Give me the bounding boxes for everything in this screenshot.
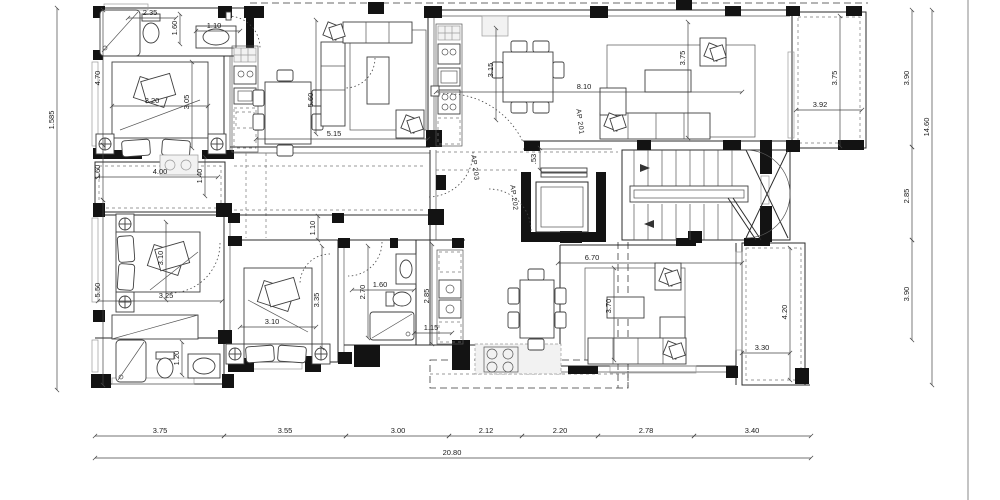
dim-label: 3.35 bbox=[312, 293, 321, 308]
dim-label-total: 1.585 bbox=[47, 111, 56, 130]
floor-plan-drawing: AP 201 AP 203 AP 202 2.35 1.60 1.10 3.20… bbox=[0, 0, 1000, 500]
dim-label: 2.70 bbox=[358, 285, 367, 300]
dim-label: 3.05 bbox=[182, 95, 191, 110]
dim-label: 3.25 bbox=[159, 291, 174, 300]
dining-table-symbol bbox=[503, 52, 553, 102]
bedroom-1 bbox=[96, 62, 226, 157]
dim-label: 3.55 bbox=[278, 426, 293, 435]
kitchen-2 bbox=[436, 16, 508, 146]
dim-label-total: 20.80 bbox=[443, 448, 462, 457]
dim-label: 1.15 bbox=[424, 323, 439, 332]
stair-direction-arrow bbox=[644, 220, 654, 228]
side-table-symbol bbox=[660, 317, 685, 340]
elevator bbox=[521, 168, 606, 242]
dim-label: 2.20 bbox=[553, 426, 568, 435]
dim-label: 3.75 bbox=[153, 426, 168, 435]
dim-label: 3.92 bbox=[813, 100, 828, 109]
door-arc bbox=[348, 242, 382, 276]
dining-table-1 bbox=[253, 70, 323, 156]
right-dimension-column: 3.90 2.85 3.90 14.60 bbox=[902, 10, 932, 385]
dim-label: 5.15 bbox=[327, 129, 342, 138]
dim-label: 1.10 bbox=[207, 21, 222, 30]
dim-label: 5.50 bbox=[93, 283, 102, 298]
dim-label: 8.10 bbox=[577, 82, 592, 91]
apartment-label-203: AP 203 bbox=[469, 155, 480, 182]
dim-label: 2.12 bbox=[479, 426, 494, 435]
floor-plan-sheet: AP 201 AP 203 AP 202 2.35 1.60 1.10 3.20… bbox=[0, 0, 1000, 500]
dim-label: 1.40 bbox=[195, 169, 204, 184]
dining-table-3 bbox=[508, 269, 566, 350]
bathroom-topleft bbox=[100, 10, 236, 56]
bottom-dimension-row: 3.75 3.55 3.00 2.12 2.20 2.78 3.40 20.80 bbox=[95, 426, 811, 458]
stove-symbol bbox=[438, 90, 460, 114]
dim-label: 5.60 bbox=[306, 93, 315, 108]
sofa-symbol bbox=[321, 42, 345, 126]
dim-label-total: 14.60 bbox=[922, 118, 931, 137]
dim-label: 1.60 bbox=[373, 280, 388, 289]
stair-direction-arrow bbox=[640, 164, 650, 172]
dim-label: 2.78 bbox=[639, 426, 654, 435]
dim-label: 4.20 bbox=[780, 305, 789, 320]
coffee-table-symbol bbox=[367, 57, 389, 104]
sink-symbol bbox=[396, 254, 416, 284]
dim-label: 3.75 bbox=[830, 71, 839, 86]
dim-label: 2.85 bbox=[422, 289, 431, 304]
dim-label: 3.90 bbox=[902, 287, 911, 302]
coffee-table-symbol bbox=[645, 70, 691, 92]
bedroom-3 bbox=[226, 268, 330, 364]
bathroom-middle bbox=[370, 254, 416, 340]
dim-label: 3.00 bbox=[391, 426, 406, 435]
dim-label: 6.70 bbox=[585, 253, 600, 262]
dim-label: 3.10 bbox=[156, 251, 165, 266]
dim-label: 3.30 bbox=[755, 343, 770, 352]
dim-label: 2.35 bbox=[143, 8, 158, 17]
dim-label: 3.75 bbox=[678, 51, 687, 66]
dim-label: 1.60 bbox=[93, 165, 102, 180]
dim-label: 3.20 bbox=[145, 96, 160, 105]
dining-table-2 bbox=[492, 41, 564, 113]
dim-label: 4.00 bbox=[153, 167, 168, 176]
living-room-1 bbox=[321, 22, 426, 138]
dim-label: 3.70 bbox=[604, 299, 613, 314]
living-room-3 bbox=[585, 263, 686, 364]
dim-label: 3.90 bbox=[902, 71, 911, 86]
dim-label: 2.85 bbox=[902, 189, 911, 204]
wardrobe bbox=[112, 315, 198, 339]
apartment-label-201: AP 201 bbox=[574, 109, 585, 136]
dining-table-symbol bbox=[520, 280, 554, 338]
dim-label: .53 bbox=[529, 154, 538, 164]
bathroom-bottomleft bbox=[116, 340, 220, 382]
dim-label: 3.15 bbox=[486, 63, 495, 78]
sink-symbol bbox=[188, 354, 220, 378]
dim-label: 1.60 bbox=[170, 21, 179, 36]
toilet-symbol bbox=[386, 292, 411, 306]
walls-thin bbox=[95, 8, 866, 388]
door-arc-ap203 bbox=[428, 152, 473, 197]
dim-label: 3.10 bbox=[265, 317, 280, 326]
dim-label: 1.20 bbox=[172, 351, 181, 366]
dim-label: 1.10 bbox=[308, 221, 317, 236]
apartment-label-202: AP 202 bbox=[508, 185, 519, 212]
dining-table-symbol bbox=[265, 82, 311, 144]
dim-label: 3.40 bbox=[745, 426, 760, 435]
kitchen-island-symbol bbox=[482, 16, 508, 36]
dim-label: 4.70 bbox=[93, 71, 102, 86]
